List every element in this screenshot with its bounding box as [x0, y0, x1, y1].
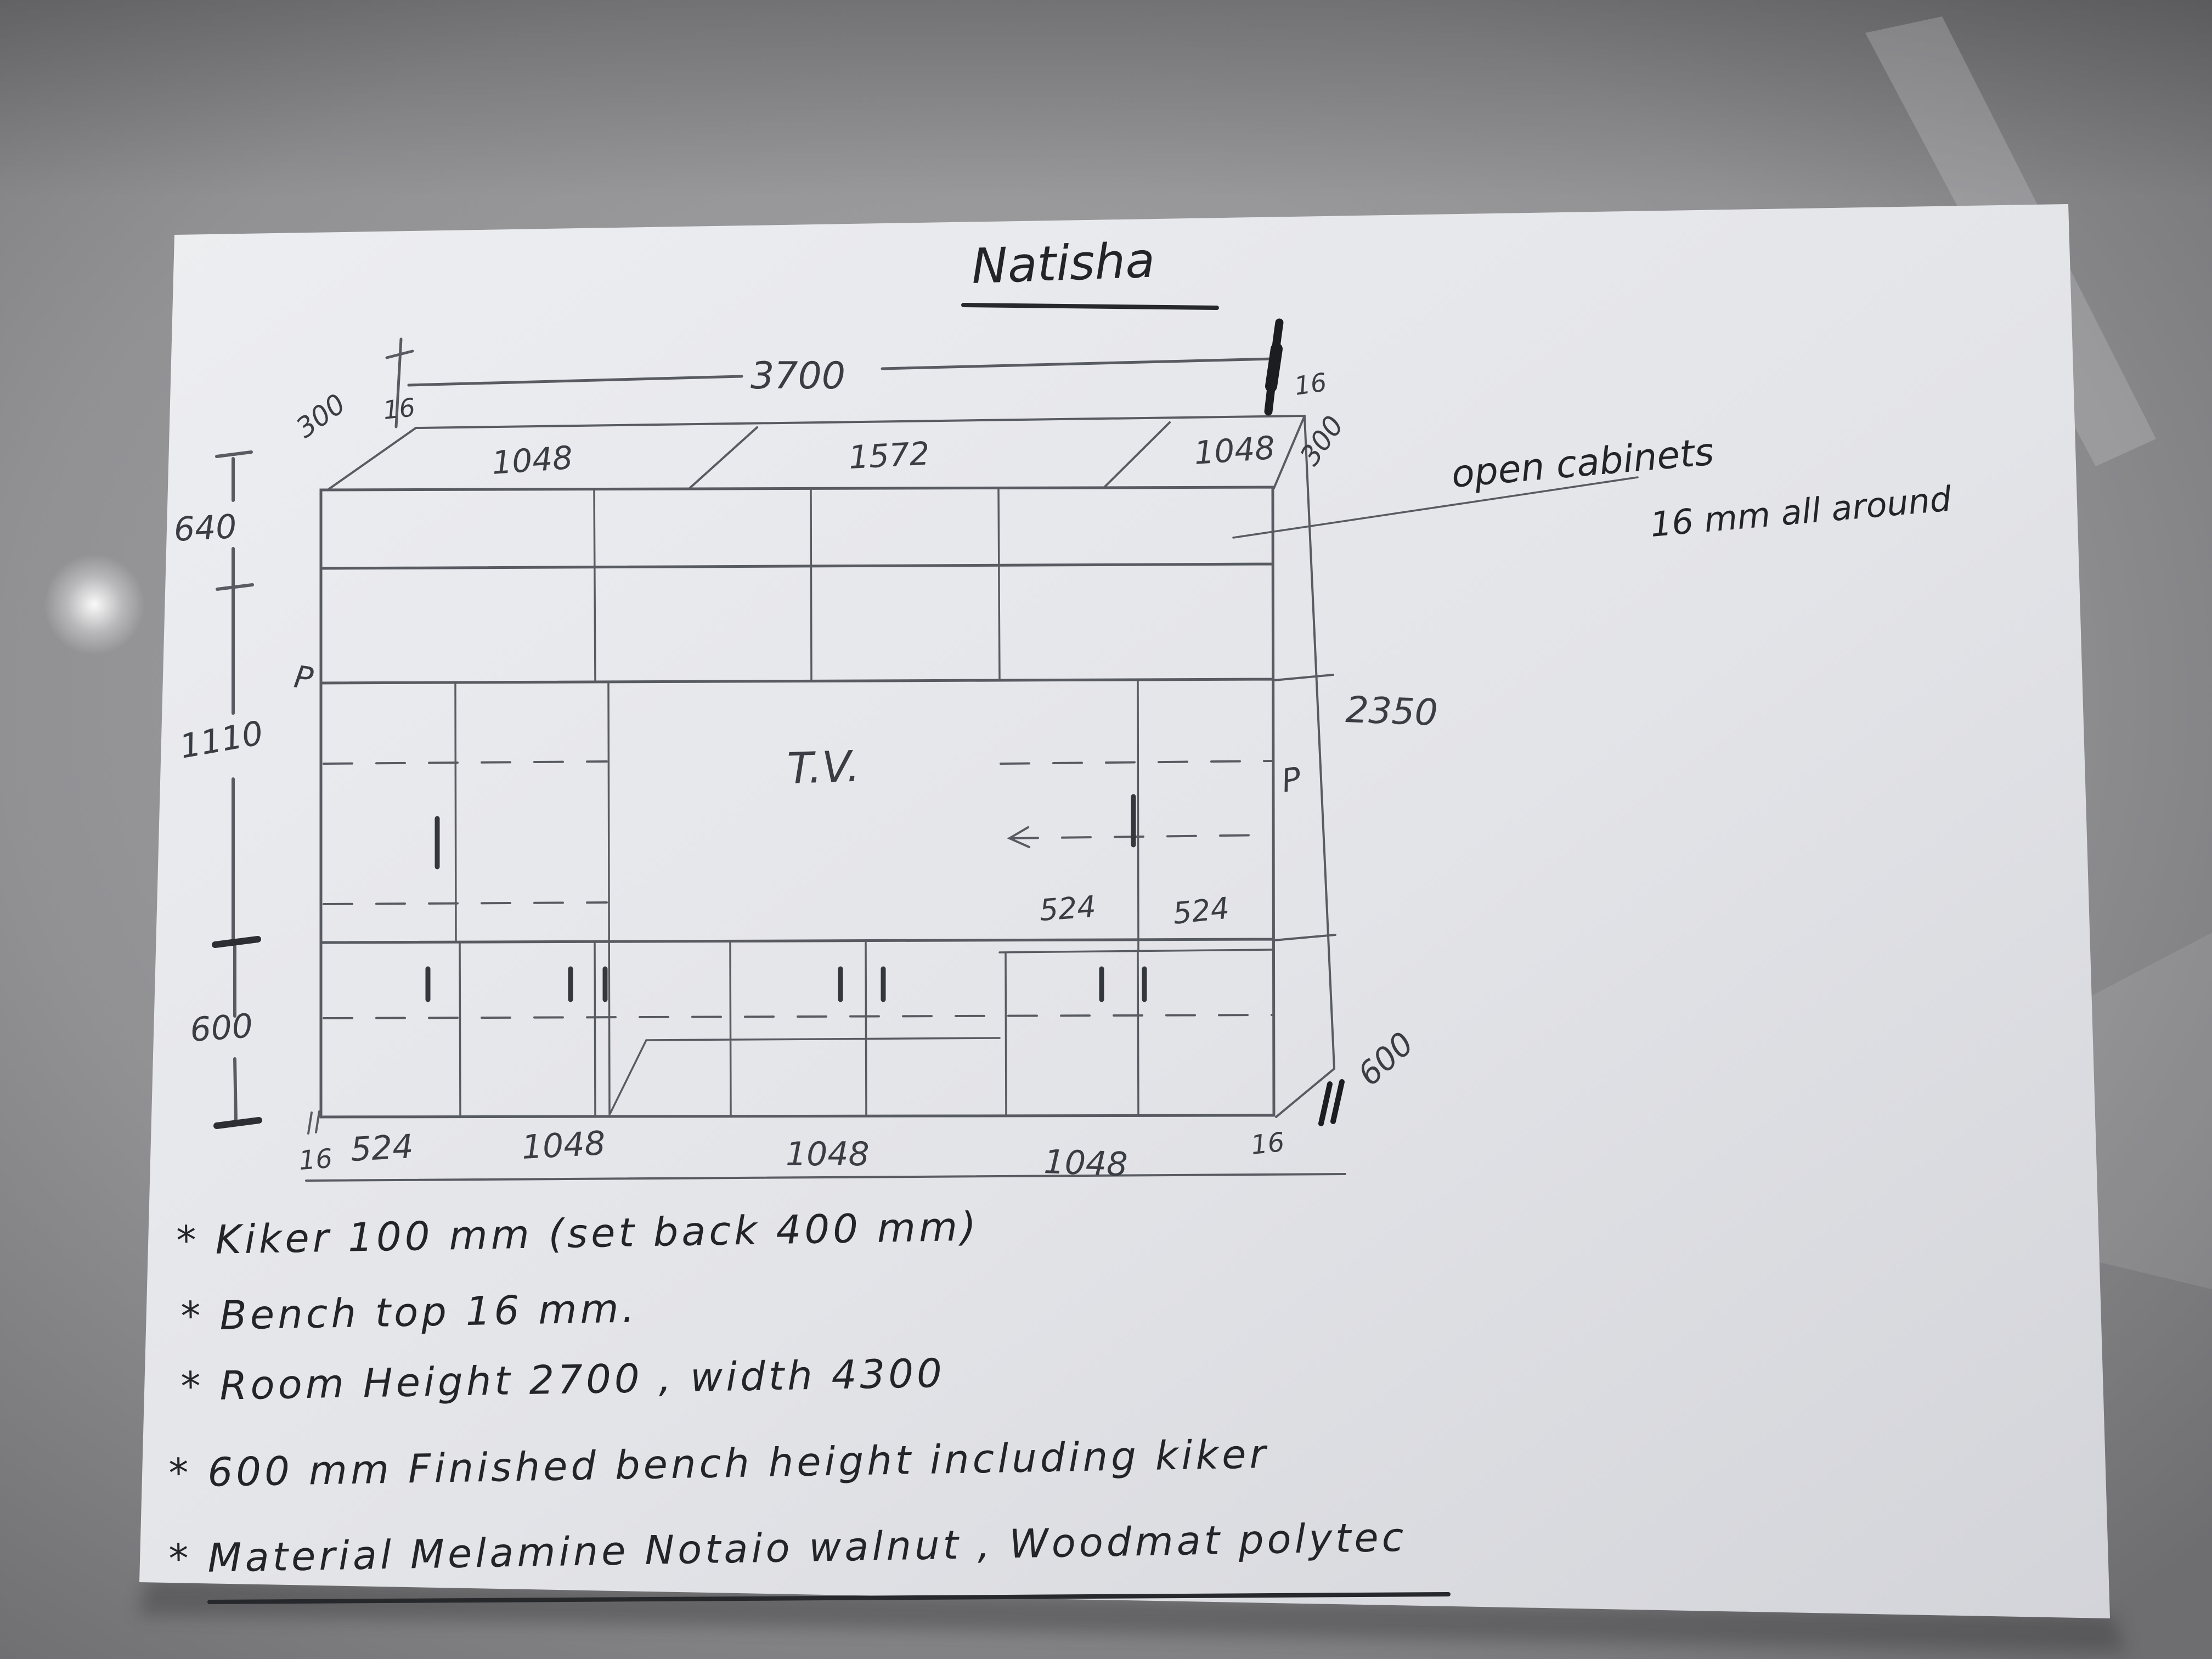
dim-bottom-1048c: 1048 [1043, 1143, 1128, 1184]
dim-bottom-1048b: 1048 [786, 1135, 870, 1173]
dim-left-600: 600 [189, 1007, 254, 1049]
dim-left-640: 640 [173, 507, 238, 549]
table-top-shadow [0, 0, 2212, 198]
page-title: Natisha [970, 232, 1156, 295]
note-bench-top: * Bench top 16 mm. [180, 1285, 638, 1339]
dim-top-seg3: 1048 [1193, 429, 1276, 472]
shelf-524-left: 524 [1039, 889, 1097, 928]
dim-edge-right-16: 16 [1293, 367, 1328, 401]
dim-overall-width: 3700 [751, 354, 845, 398]
dim-top-seg2: 1572 [848, 435, 930, 476]
dim-bottom-16-left: 16 [298, 1143, 334, 1176]
tv-label: T.V. [787, 742, 861, 794]
dim-bottom-524: 524 [349, 1127, 414, 1169]
dim-right-2350: 2350 [1345, 689, 1438, 734]
dim-edge-left-16: 16 [382, 392, 417, 425]
ink-arrow-top-right-blob [1271, 349, 1277, 386]
dim-bottom-1048a: 1048 [521, 1124, 606, 1167]
title-underline [963, 305, 1217, 308]
dim-bottom-16-right: 16 [1249, 1127, 1286, 1161]
dim-top-seg1: 1048 [490, 439, 574, 482]
light-reflection [44, 554, 145, 655]
sheet-photo: Natisha open cabinets 16 mm all around 3… [0, 0, 2212, 1659]
paper-sheet [139, 204, 2110, 1618]
shelf-524-right: 524 [1171, 890, 1231, 930]
